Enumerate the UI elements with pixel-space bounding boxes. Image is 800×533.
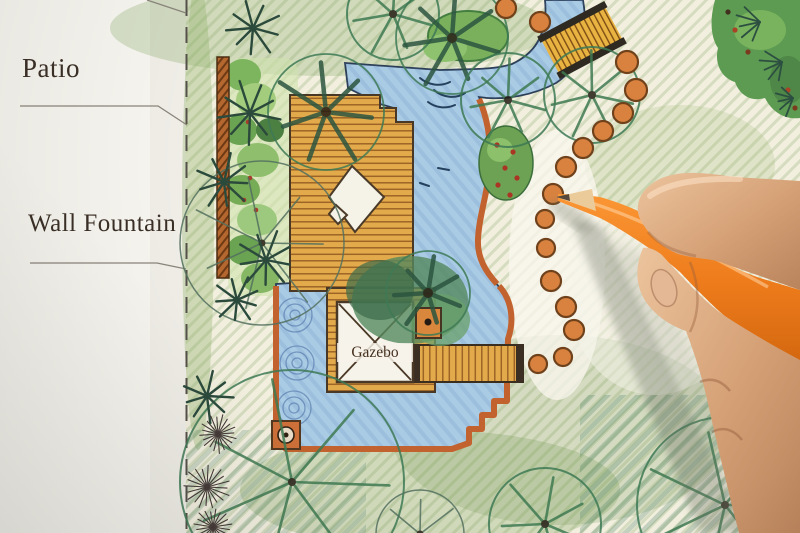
stepping-stone <box>554 348 572 366</box>
boardwalk-end-cap <box>516 345 523 382</box>
stepping-stone <box>536 210 554 228</box>
landscape-plan-photo: Patio Wall Fountain Gazebo <box>0 0 800 533</box>
stepping-stone <box>541 271 561 291</box>
stepping-stone <box>625 79 647 101</box>
stepping-stone <box>496 0 516 18</box>
stepping-stone <box>529 355 547 373</box>
stepping-stone <box>537 239 555 257</box>
stepping-stone <box>556 157 576 177</box>
boardwalk <box>413 345 523 382</box>
plan-drawing <box>0 0 800 533</box>
stepping-stone <box>530 12 550 32</box>
wall-fountain-label: Wall Fountain <box>28 210 176 238</box>
patio-label: Patio <box>22 53 80 84</box>
stepping-stone <box>616 51 638 73</box>
stepping-stone <box>573 138 593 158</box>
stepping-stone <box>613 103 633 123</box>
stepping-stone <box>593 121 613 141</box>
stepping-stone <box>556 297 576 317</box>
gazebo-label: Gazebo <box>337 343 413 362</box>
margin-shading <box>150 0 186 533</box>
stepping-stone <box>564 320 584 340</box>
